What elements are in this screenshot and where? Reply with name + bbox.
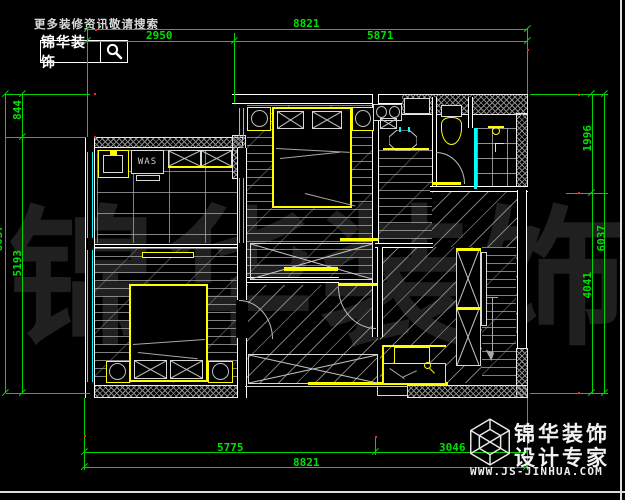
cube-logo-icon bbox=[468, 417, 512, 467]
footer-brand: 锦华装饰 设计专家 WWW.JS-JINHUA.COM bbox=[0, 0, 625, 500]
cad-floorplan-screenshot: { "branding": { "search_hint": "更多装修资讯敬请… bbox=[0, 0, 625, 500]
footer-website: WWW.JS-JINHUA.COM bbox=[470, 465, 603, 478]
